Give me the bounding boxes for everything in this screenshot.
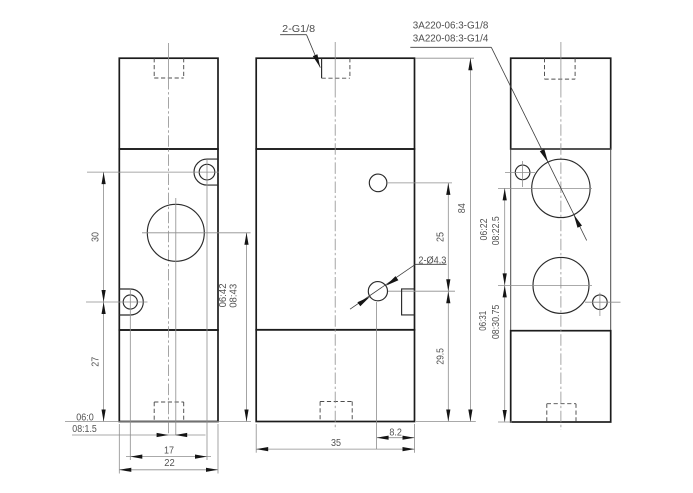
svg-text:30: 30 bbox=[90, 232, 102, 242]
svg-text:06:22: 06:22 bbox=[478, 218, 490, 240]
svg-text:84: 84 bbox=[456, 203, 468, 213]
svg-text:08:22.5: 08:22.5 bbox=[490, 216, 502, 245]
svg-text:3A220-06:3-G1/8: 3A220-06:3-G1/8 bbox=[413, 21, 489, 32]
svg-text:08:1.5: 08:1.5 bbox=[72, 424, 97, 435]
svg-text:2-G1/8: 2-G1/8 bbox=[282, 23, 315, 35]
svg-text:08:43: 08:43 bbox=[228, 284, 240, 308]
svg-text:3A220-08:3-G1/4: 3A220-08:3-G1/4 bbox=[413, 33, 489, 44]
svg-text:17: 17 bbox=[164, 444, 174, 456]
svg-text:08:30.75: 08:30.75 bbox=[490, 305, 502, 340]
svg-text:25: 25 bbox=[435, 232, 447, 242]
svg-text:22: 22 bbox=[164, 457, 175, 469]
svg-text:35: 35 bbox=[331, 437, 341, 449]
svg-text:27: 27 bbox=[90, 357, 102, 367]
svg-text:06:31: 06:31 bbox=[477, 311, 489, 331]
svg-text:29.5: 29.5 bbox=[435, 348, 447, 365]
svg-text:8.2: 8.2 bbox=[389, 427, 402, 438]
svg-text:06:0: 06:0 bbox=[76, 413, 94, 424]
